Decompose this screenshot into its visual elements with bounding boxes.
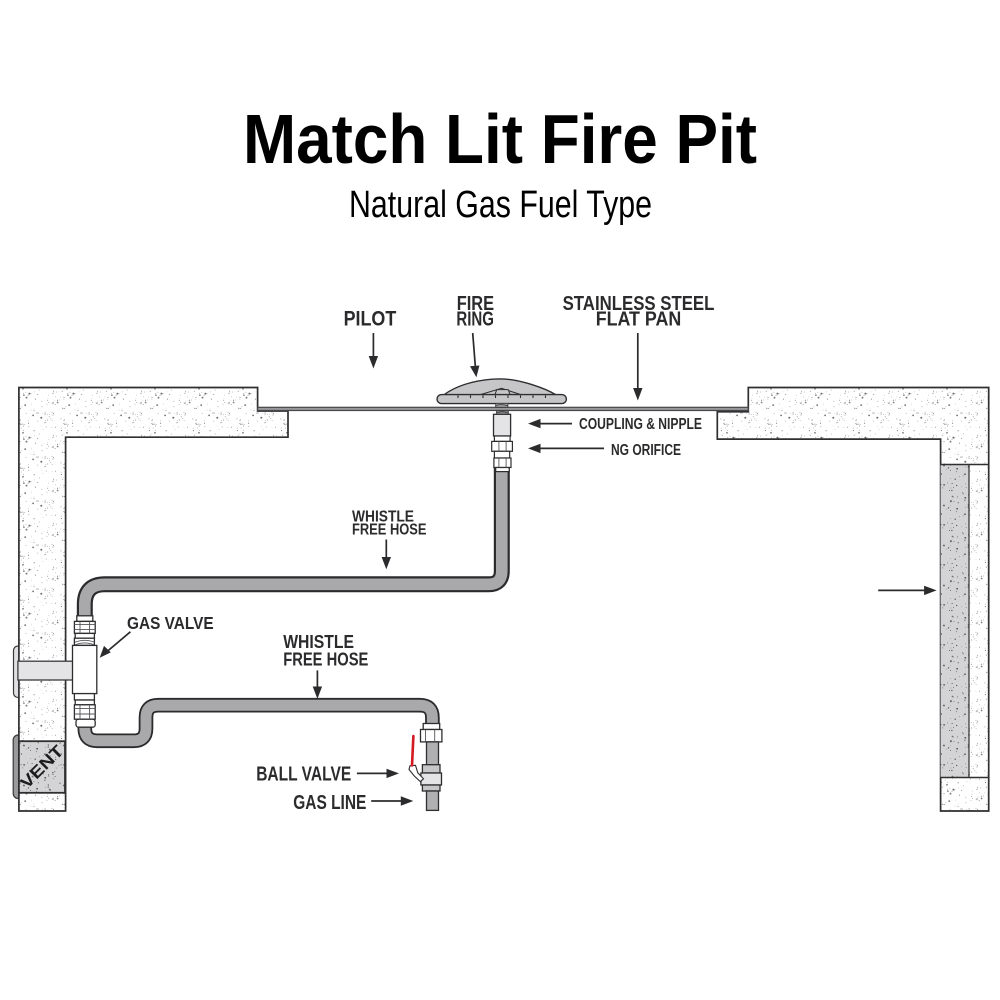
- svg-text:COUPLING & NIPPLE: COUPLING & NIPPLE: [579, 416, 702, 433]
- svg-text:FREE HOSE: FREE HOSE: [283, 650, 368, 670]
- svg-text:PILOT: PILOT: [344, 308, 397, 331]
- svg-text:RING: RING: [456, 308, 494, 331]
- svg-text:Natural Gas Fuel Type: Natural Gas Fuel Type: [349, 184, 652, 226]
- svg-text:BALL VALVE: BALL VALVE: [256, 763, 351, 785]
- svg-text:FLAT PAN: FLAT PAN: [596, 308, 682, 331]
- svg-text:GAS VALVE: GAS VALVE: [127, 613, 214, 633]
- svg-text:GAS LINE: GAS LINE: [293, 792, 366, 814]
- svg-text:NG ORIFICE: NG ORIFICE: [611, 442, 681, 459]
- svg-text:FREE HOSE: FREE HOSE: [352, 522, 427, 539]
- svg-text:Match Lit Fire Pit: Match Lit Fire Pit: [243, 100, 757, 178]
